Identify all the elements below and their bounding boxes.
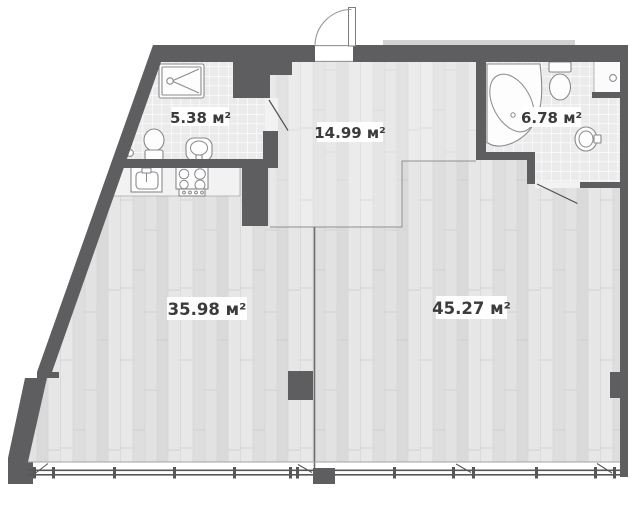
washbasin-shower-room — [186, 138, 212, 161]
label-living-room: 45.27 м² — [432, 296, 511, 319]
floor-plan-canvas: 5.38 м² 14.99 м² 6.78 м² 35.98 м² 45.27 … — [0, 0, 639, 507]
left-wall-jog — [37, 372, 59, 378]
window-pier — [313, 468, 335, 484]
toilet-shower-room — [144, 129, 164, 160]
entrance-threshold — [315, 45, 353, 62]
label-kitchen-living-room: 35.98 м² — [167, 297, 247, 320]
parapet-shadow — [383, 40, 575, 45]
bathroom-southwest-wall — [476, 152, 535, 160]
bathroom-doorway — [535, 182, 580, 188]
hall-corner-wall-step — [270, 62, 292, 75]
top-wall-left — [153, 45, 315, 62]
toilet-bathroom — [549, 60, 571, 100]
vent-circle-bathroom — [610, 75, 617, 82]
label-entrance-hall: 14.99 м² — [314, 122, 386, 142]
top-wall-right — [353, 45, 628, 62]
stove — [176, 166, 208, 196]
entrance-door-leaf — [349, 8, 356, 47]
area-text-living-room: 45.27 м² — [432, 299, 511, 318]
bathroom-west-wall — [476, 62, 486, 152]
shaft-wall-step — [592, 92, 620, 98]
label-bathroom: 6.78 м² — [521, 107, 582, 127]
bathroom-south-wall — [580, 182, 620, 188]
area-text-bathroom: 6.78 м² — [521, 109, 582, 127]
shower-room-south-wall — [123, 159, 278, 168]
area-text-entrance-hall: 14.99 м² — [314, 124, 386, 142]
kitchen-sink — [131, 167, 162, 192]
right-wall-pilaster — [610, 372, 620, 398]
bathroom-door-jamb-wall — [527, 160, 535, 184]
right-wall — [620, 62, 628, 477]
partition-column — [288, 371, 313, 400]
floor-plan: 5.38 м² 14.99 м² 6.78 м² 35.98 м² 45.27 … — [0, 0, 639, 507]
hall-corner-wall-block — [233, 62, 270, 98]
area-text-kitchen-living-room: 35.98 м² — [168, 300, 247, 319]
label-shower-room: 5.38 м² — [170, 107, 231, 127]
kitchen-hall-wall — [242, 168, 268, 226]
area-text-shower-room: 5.38 м² — [170, 109, 231, 127]
shower-room-door-jamb-wall — [263, 131, 278, 168]
shower-tray — [159, 64, 204, 98]
